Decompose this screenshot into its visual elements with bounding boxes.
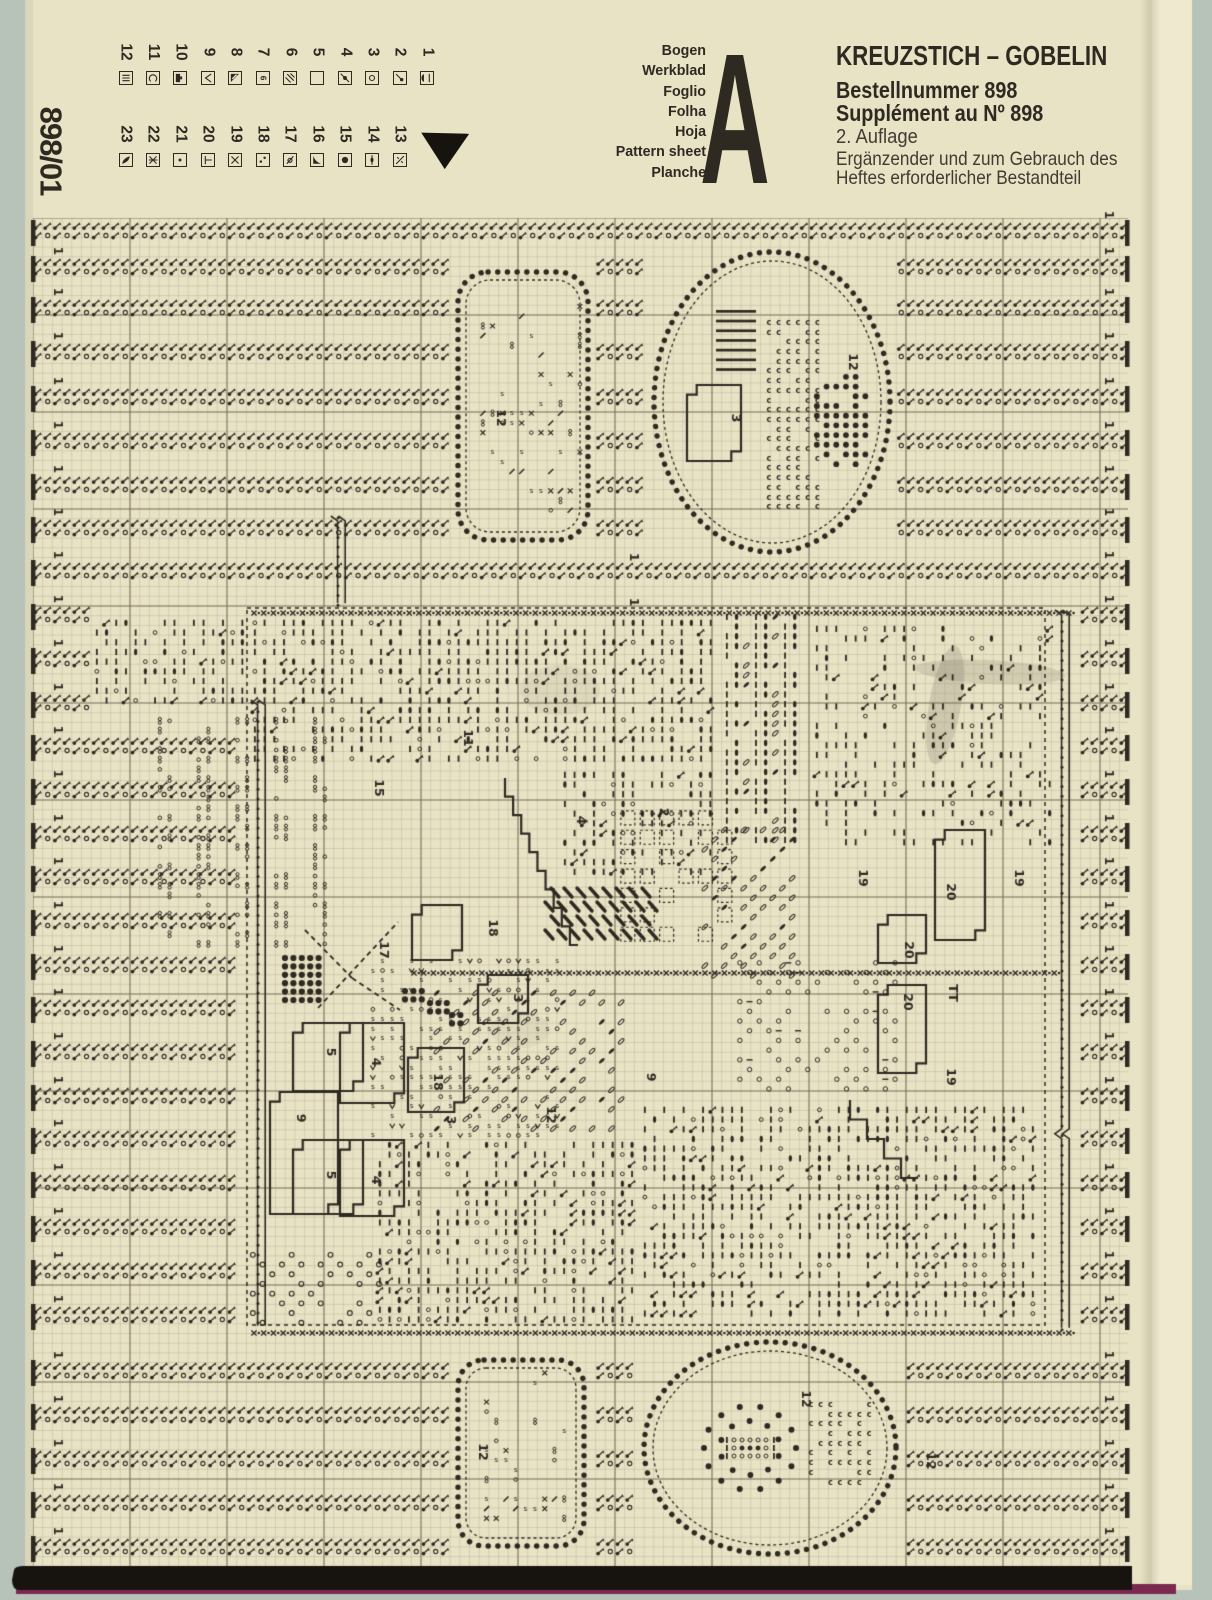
legend-entry-17: 17: [276, 118, 303, 169]
legend-entry-16: 16: [304, 118, 331, 169]
legend-check-icon: [201, 71, 215, 85]
legend-entry-2: 2: [386, 36, 413, 85]
legend-x-bar-icon: [146, 153, 160, 167]
legend-entry-13: 13: [386, 118, 413, 169]
legend-number: 3: [363, 36, 381, 68]
sheet-number-vertical: 898/01: [30, 90, 70, 212]
legend-two-dots-icon: [256, 153, 270, 167]
legend-entry-18: 18: [249, 118, 276, 169]
language-item: Planche: [560, 163, 706, 183]
legend-number: 1: [418, 36, 436, 68]
legend-entry-6: 6: [276, 36, 303, 85]
legend-number: 16: [308, 118, 326, 150]
legend-filled-circle-icon: [338, 153, 352, 167]
legend-entry-5: 5: [304, 36, 331, 85]
legend-empty-icon: [310, 71, 324, 85]
legend-number: 2: [391, 36, 409, 68]
legend-number: 4: [336, 36, 354, 68]
legend-triple-bar-icon: [119, 71, 133, 85]
supplement-number: Supplément au Nº 898: [836, 100, 1043, 127]
legend-number: 22: [144, 118, 162, 150]
legend-circle-icon: [365, 71, 379, 85]
language-item: Hoja: [560, 122, 706, 142]
legend-comma-dot-icon: [393, 71, 407, 85]
language-list: BogenWerkbladFoglioFolhaHojaPattern shee…: [560, 41, 706, 183]
legend-number: 9: [199, 36, 217, 68]
sheet-number-text: 898/01: [32, 107, 68, 196]
legend-entry-14: 14: [359, 118, 386, 169]
legend-entry-11: 11: [139, 36, 166, 85]
legend-zero-slash-icon: [393, 153, 407, 167]
legend-entry-20: 20: [194, 118, 221, 169]
sheet-letter: A: [700, 27, 770, 213]
legend-number: 14: [363, 118, 381, 150]
language-item: Folha: [560, 102, 706, 122]
legend-entry-1: 1: [413, 36, 440, 85]
legend-entry-4: 4: [331, 36, 358, 85]
legend-number: 13: [391, 118, 409, 150]
legend-entry-9: 9: [194, 36, 221, 85]
legend-half-lens-icon: [420, 71, 434, 85]
legend-corner-triangle-icon: [228, 71, 242, 85]
language-item: Bogen: [560, 41, 706, 61]
legend-six-flag-icon: 6: [256, 71, 270, 85]
language-item: Pattern sheet: [560, 142, 706, 162]
svg-text:6: 6: [258, 76, 268, 81]
legend-number: 12: [117, 36, 135, 68]
legend-entry-22: 22: [139, 118, 166, 169]
cross-stitch-chart-canvas: [0, 0, 1212, 1600]
legend-entry-7: 76: [249, 36, 276, 85]
legend-entry-10: 10: [167, 36, 194, 85]
legend-number: 15: [336, 118, 354, 150]
legend-small-dot-icon: [173, 153, 187, 167]
legend-black-triangle-icon: [310, 153, 324, 167]
legend-leaf-filled-icon: [119, 153, 133, 167]
legend-number: 5: [308, 36, 326, 68]
legend-number: 21: [171, 118, 189, 150]
legend-number: 10: [171, 36, 189, 68]
legend-number: 18: [254, 118, 272, 150]
legend-entry-15: 15: [331, 118, 358, 169]
page-title: KREUZSTICH – GOBELIN: [836, 40, 1107, 72]
triangle-down-icon: [418, 130, 470, 170]
legend-row-2: 2322212019181716151413: [112, 118, 469, 169]
legend-number: 7: [254, 36, 272, 68]
legend-bar-lens-icon: [365, 153, 379, 167]
legend-number: 20: [199, 118, 217, 150]
symbol-legend: 1211109876654321 2322212019181716151413: [112, 34, 532, 194]
legend-hatch-icon: [283, 71, 297, 85]
legend-x-icon: [228, 153, 242, 167]
legend-number: 19: [226, 118, 244, 150]
legend-entry-3: 3: [359, 36, 386, 85]
language-item: Werkblad: [560, 61, 706, 81]
legend-number: 23: [117, 118, 135, 150]
pattern-sheet-page: 898/01 1211109876654321 2322212019181716…: [0, 0, 1212, 1600]
legend-number: 6: [281, 36, 299, 68]
legend-half-square-icon: [173, 71, 187, 85]
language-item: Foglio: [560, 82, 706, 102]
legend-entry-8: 8: [222, 36, 249, 85]
legend-t-bar-icon: [201, 153, 215, 167]
legend-dot-slash-icon: [338, 71, 352, 85]
legend-entry-12: 12: [112, 36, 139, 85]
legend-entry-21: 21: [167, 118, 194, 169]
usage-note-line2: Heftes erforderlicher Bestandteil: [836, 167, 1081, 190]
legend-c-icon: [146, 71, 160, 85]
legend-row-1: 1211109876654321: [112, 36, 441, 85]
legend-number: 11: [144, 36, 162, 68]
legend-entry-23: 23: [112, 118, 139, 169]
legend-o-slash-icon: [283, 153, 297, 167]
legend-number: 17: [281, 118, 299, 150]
edition-note: 2. Auflage: [836, 126, 918, 149]
legend-entry-19: 19: [222, 118, 249, 169]
legend-number: 8: [226, 36, 244, 68]
